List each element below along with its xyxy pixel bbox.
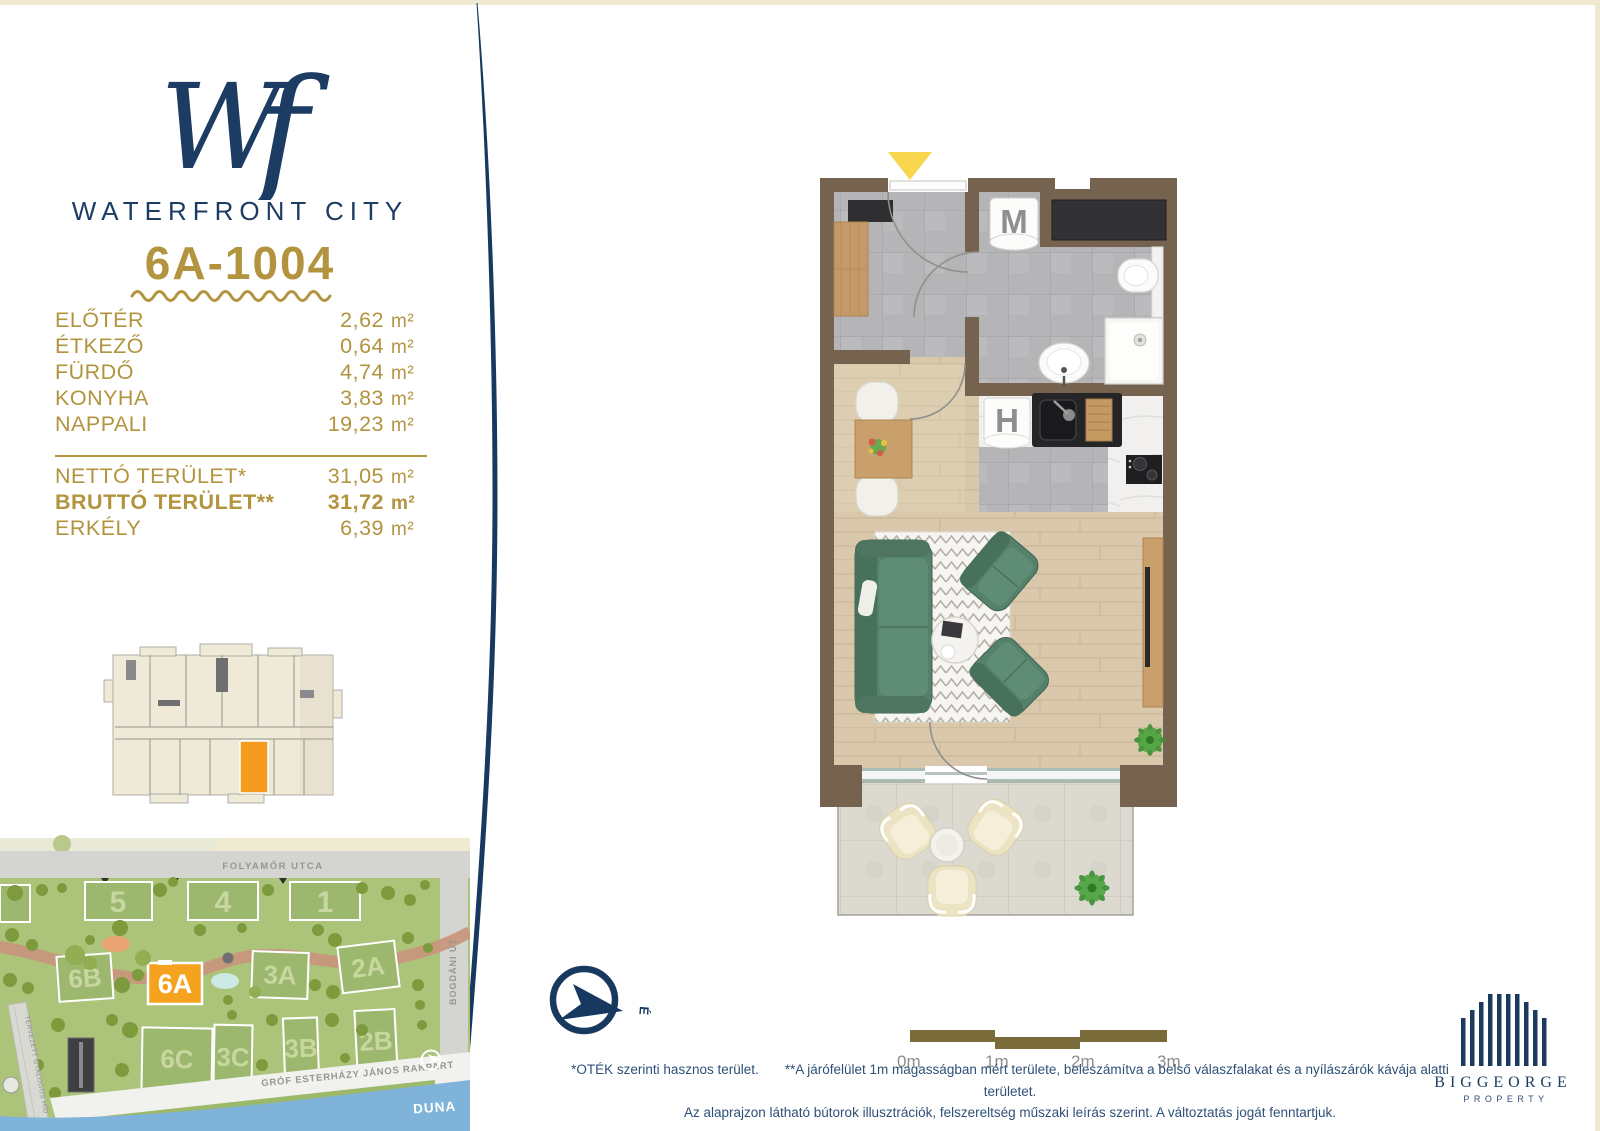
tv-console	[1143, 538, 1163, 707]
biggeorge-building-icon	[1461, 994, 1547, 1066]
building-footprint	[104, 644, 342, 803]
balcony	[838, 782, 1133, 916]
playground	[102, 936, 130, 952]
room-value: 19,23	[306, 412, 384, 436]
room-row: NAPPALI 19,23 m²	[55, 412, 427, 438]
svg-text:6A: 6A	[158, 969, 193, 999]
room-unit: m²	[384, 362, 427, 386]
room-label: ÉTKEZŐ	[55, 334, 306, 358]
room-value: 4,74	[306, 360, 384, 384]
north-compass: É	[535, 950, 665, 1035]
kitchen-sink	[1032, 393, 1122, 447]
site-map: FOLYAMŐR UTCA 5 4 1 6B 6A 3A	[0, 828, 470, 1131]
total-row: ERKÉLY 6,39 m²	[55, 516, 427, 542]
totals-list: NETTÓ TERÜLET* 31,05 m² BRUTTÓ TERÜLET**…	[55, 464, 427, 542]
footnotes: *OTÉK szerinti hasznos terület.**A járóf…	[560, 1059, 1460, 1124]
room-unit: m²	[384, 336, 427, 360]
biggeorge-logo: BIGGEORGE PROPERTY	[1428, 988, 1578, 1113]
cutting-board	[1086, 399, 1112, 441]
highlighted-unit-marker	[240, 741, 268, 793]
washing-machine: M	[990, 198, 1038, 250]
river-label: DUNA	[413, 1099, 457, 1117]
entrance-marker	[888, 152, 932, 180]
north-label: É	[636, 1006, 652, 1016]
svg-text:4: 4	[215, 886, 232, 919]
squiggle-underline	[128, 288, 348, 304]
footnote-gross: **A járófelület 1m magasságban mért terü…	[785, 1062, 1449, 1099]
site-building: 2A	[337, 941, 399, 994]
fridge: H	[984, 398, 1030, 448]
floor-overview-map	[100, 635, 355, 810]
room-label: FÜRDŐ	[55, 360, 306, 384]
area-divider-line	[55, 455, 427, 457]
unit-id: 6A-1004	[60, 236, 420, 290]
room-row: ÉTKEZŐ 0,64 m²	[55, 334, 427, 360]
dining-chair	[856, 474, 898, 516]
coffee-table	[932, 617, 978, 663]
footnote-line2: Az alaprajzon látható bútorok illusztrác…	[560, 1102, 1460, 1124]
developer-name: BIGGEORGE	[1434, 1074, 1571, 1091]
total-unit: m²	[384, 492, 427, 516]
total-label: ERKÉLY	[55, 516, 306, 540]
total-value: 6,39	[306, 516, 384, 540]
footnote-otek: *OTÉK szerinti hasznos terület.	[571, 1062, 759, 1077]
room-list: ELŐTÉR 2,62 m² ÉTKEZŐ 0,64 m² FÜRDŐ 4,74…	[55, 308, 427, 438]
total-value: 31,72	[306, 490, 384, 514]
dining-chair	[856, 382, 898, 424]
room-value: 0,64	[306, 334, 384, 358]
balcony-chair	[928, 866, 976, 916]
svg-text:3C: 3C	[216, 1042, 250, 1073]
room-unit: m²	[384, 310, 427, 334]
utility-building	[68, 1038, 94, 1092]
svg-text:1: 1	[317, 886, 334, 919]
room-label: NAPPALI	[55, 412, 306, 436]
entrance-door-leaf	[890, 181, 966, 190]
shower	[1105, 318, 1163, 384]
washer-label: M	[1000, 203, 1028, 240]
fountain	[223, 953, 234, 964]
svg-text:5: 5	[110, 886, 127, 919]
site-building-highlighted: 6A	[148, 960, 202, 1004]
wall-notch	[1055, 178, 1090, 189]
footnote-line1: *OTÉK szerinti hasznos terület.**A járóf…	[560, 1059, 1460, 1102]
total-label: BRUTTÓ TERÜLET**	[55, 490, 306, 514]
total-value: 31,05	[306, 464, 384, 488]
room-label: ELŐTÉR	[55, 308, 306, 332]
room-row: ELŐTÉR 2,62 m²	[55, 308, 427, 334]
total-label: NETTÓ TERÜLET*	[55, 464, 306, 488]
sofa	[855, 540, 932, 713]
cooktop	[1126, 455, 1162, 484]
street-label-bogdani: BOGDÁNI ÚT	[447, 938, 458, 1005]
logo-f: f	[247, 49, 330, 200]
pond	[211, 973, 239, 989]
svg-text:6C: 6C	[160, 1044, 194, 1075]
kitchen-floor	[979, 447, 1108, 512]
brand-name: WATERFRONT CITY	[60, 196, 420, 227]
street-label-folyamor: FOLYAMŐR UTCA	[222, 860, 323, 872]
total-unit: m²	[384, 466, 427, 490]
total-row: NETTÓ TERÜLET* 31,05 m²	[55, 464, 427, 490]
living-room-plant	[1134, 724, 1166, 756]
hall-shelf	[848, 200, 893, 222]
room-row: FÜRDŐ 4,74 m²	[55, 360, 427, 386]
room-row: KONYHA 3,83 m²	[55, 386, 427, 412]
svg-text:3A: 3A	[263, 959, 297, 990]
room-value: 3,83	[306, 386, 384, 410]
svg-text:2A: 2A	[350, 950, 387, 984]
total-row-gross: BRUTTÓ TERÜLET** 31,72 m²	[55, 490, 427, 516]
total-unit: m²	[384, 518, 427, 542]
balcony-plant	[1074, 870, 1109, 905]
svg-text:3B: 3B	[284, 1032, 318, 1063]
room-value: 2,62	[306, 308, 384, 332]
hall-wardrobe	[834, 222, 868, 316]
room-label: KONYHA	[55, 386, 306, 410]
built-in-closet	[1052, 200, 1166, 240]
site-building: 6C	[141, 1027, 212, 1090]
balcony-glass-door	[862, 766, 1120, 783]
fridge-label: H	[995, 402, 1019, 439]
waterfront-logo: W f	[60, 40, 420, 200]
room-unit: m²	[384, 388, 427, 412]
developer-division: PROPERTY	[1463, 1094, 1548, 1104]
floor-plan: M H	[800, 140, 1200, 930]
room-unit: m²	[384, 414, 427, 438]
